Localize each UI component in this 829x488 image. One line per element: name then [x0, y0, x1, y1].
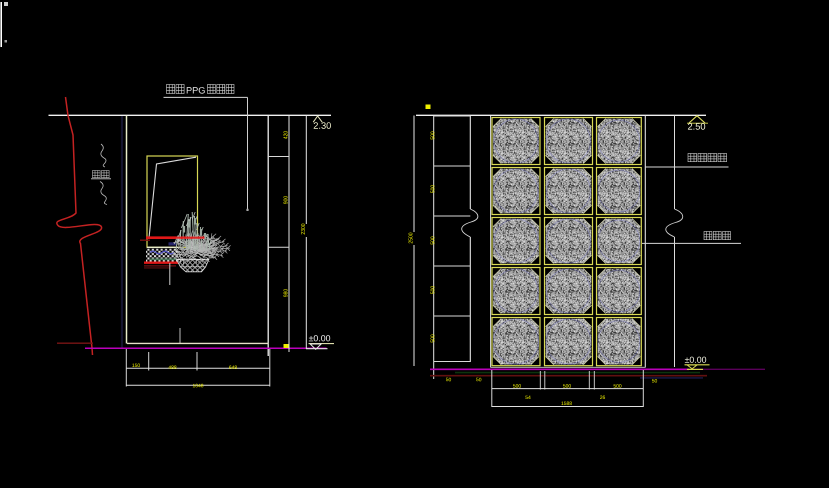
- svg-text:2500: 2500: [409, 232, 415, 243]
- svg-text:980: 980: [284, 289, 290, 298]
- svg-text:±0.00: ±0.00: [309, 333, 331, 343]
- svg-text:648: 648: [229, 365, 238, 371]
- svg-text:500: 500: [431, 236, 437, 245]
- svg-text:26: 26: [600, 395, 606, 401]
- svg-text:500: 500: [613, 384, 622, 390]
- svg-text:50: 50: [652, 378, 658, 384]
- svg-text:54: 54: [525, 395, 531, 401]
- svg-text:1048: 1048: [192, 383, 203, 389]
- svg-text:500: 500: [431, 334, 437, 343]
- svg-text:50: 50: [476, 377, 482, 383]
- svg-text:420: 420: [284, 131, 290, 140]
- svg-text:500: 500: [431, 131, 437, 140]
- svg-text:50: 50: [446, 377, 452, 383]
- svg-text:500: 500: [563, 384, 572, 390]
- svg-text:2.50: 2.50: [687, 122, 705, 132]
- svg-text:PPG: PPG: [186, 86, 205, 96]
- svg-text:500: 500: [513, 384, 522, 390]
- svg-text:900: 900: [284, 196, 290, 205]
- svg-text:±0.00: ±0.00: [685, 355, 707, 365]
- svg-text:150: 150: [132, 363, 141, 369]
- svg-text:500: 500: [431, 185, 437, 194]
- svg-text:1588: 1588: [561, 401, 572, 407]
- svg-text:488: 488: [168, 365, 177, 371]
- svg-text:500: 500: [431, 286, 437, 295]
- svg-text:2.30: 2.30: [313, 121, 331, 131]
- svg-text:2300: 2300: [301, 223, 307, 234]
